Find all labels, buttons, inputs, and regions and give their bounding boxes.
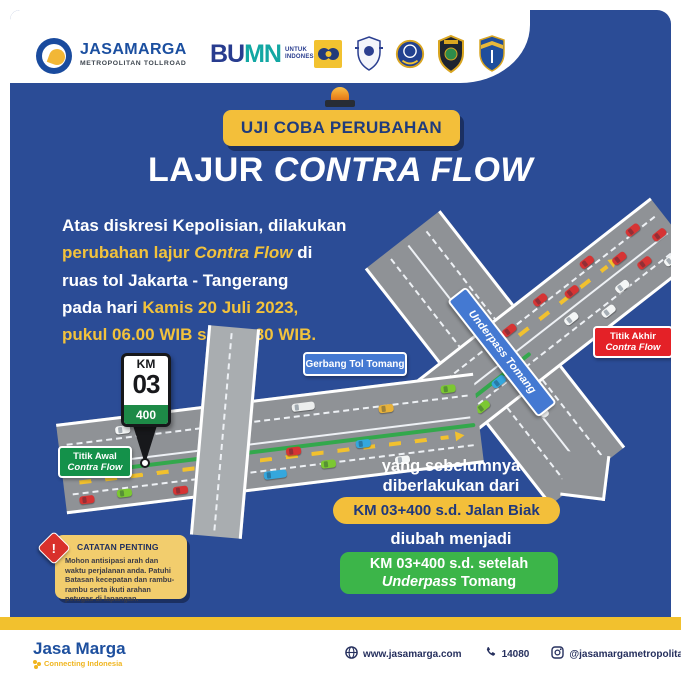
km-sign-anchor-dot	[140, 458, 150, 468]
contraflow-end-line1: Titik Akhir	[610, 331, 656, 342]
car-icon	[117, 488, 133, 498]
warning-exclamation: !	[52, 541, 56, 556]
globe-icon	[345, 646, 358, 662]
dki-jakarta-logo-icon	[476, 34, 508, 74]
jasamarga-logo-subtitle: METROPOLITAN TOLLROAD	[80, 60, 187, 67]
main-panel: JASAMARGA METROPOLITAN TOLLROAD BUMN UNT…	[10, 10, 671, 617]
footer-tagline: Connecting Indonesia	[44, 659, 122, 668]
footer-brand: Jasa Marga	[33, 639, 126, 659]
agency-emblems	[312, 34, 508, 74]
pu-ministry-logo-icon	[312, 34, 344, 74]
siren-icon	[325, 87, 355, 109]
road-crossing-vertical	[190, 325, 260, 539]
yellow-stripe	[0, 617, 681, 630]
truck-icon	[291, 401, 315, 412]
km-marker-sign: KM 03 400	[121, 353, 171, 427]
change-before-line2: diberlakukan dari	[337, 476, 565, 496]
car-icon	[440, 384, 456, 394]
footer-phone[interactable]: 14080	[484, 646, 530, 662]
instagram-icon	[551, 646, 564, 662]
intro-line4-regular: pada hari	[62, 298, 142, 317]
jasamarga-logo-icon	[36, 38, 72, 74]
page-title-regular: LAJUR	[148, 151, 274, 189]
change-transition-text: diubah menjadi	[337, 529, 565, 549]
kemenhub-logo-icon	[394, 34, 426, 74]
footer-phone-label: 14080	[502, 649, 530, 660]
change-after-italic: Underpass	[382, 574, 457, 590]
footer-tagline-icon	[33, 660, 37, 664]
change-before-text: yang sebelumnya diberlakukan dari	[337, 456, 565, 496]
intro-line4-highlight: Kamis 20 Juli 2023,	[142, 298, 298, 317]
phone-icon	[484, 646, 497, 662]
footer-website-label: www.jasamarga.com	[363, 649, 462, 660]
intro-line1: Atas diskresi Kepolisian, dilakukan	[62, 212, 402, 239]
footer-instagram[interactable]: @jasamargametropolitan	[551, 646, 681, 662]
footer: Jasa Marga Connecting Indonesia www.jasa…	[0, 630, 681, 680]
bumn-logo: BUMN UNTUK INDONESIA	[210, 42, 320, 67]
contraflow-end-badge: Titik Akhir Contra Flow	[593, 326, 671, 358]
important-note-title: CATATAN PENTING	[77, 542, 159, 552]
bumn-logo-mn: MN	[244, 40, 281, 68]
km-sign-meters: 400	[124, 405, 168, 424]
road-end-arrow-icon	[560, 451, 610, 501]
jasamarga-logo: JASAMARGA METROPOLITAN TOLLROAD	[80, 41, 187, 67]
change-after-value: KM 03+400 s.d. setelah Underpass Tomang	[340, 552, 558, 594]
intro-line2-tail: di	[292, 243, 312, 262]
intro-line4: pada hari Kamis 20 Juli 2023,	[62, 294, 402, 321]
change-after-line1: KM 03+400 s.d. setelah	[370, 555, 528, 573]
change-before-line1: yang sebelumnya	[337, 456, 565, 476]
korlantas-polri-logo-icon	[353, 34, 385, 74]
important-note-box: CATATAN PENTING Mohon antisipasi arah da…	[55, 535, 187, 599]
footer-instagram-label: @jasamargametropolitan	[569, 649, 681, 660]
trial-banner: UJI COBA PERUBAHAN	[223, 110, 460, 146]
intro-line2-italic: Contra Flow	[194, 243, 292, 262]
car-icon	[624, 222, 641, 238]
intro-line3: ruas tol Jakarta - Tangerang	[62, 267, 402, 294]
page-title-italic: CONTRA FLOW	[274, 151, 533, 189]
intro-line2: perubahan lajur Contra Flow di	[62, 239, 402, 266]
change-transition-label: diubah menjadi	[337, 529, 565, 549]
page-title: LAJUR CONTRA FLOW	[10, 151, 671, 190]
toll-gate-badge: Gerbang Tol Tomang	[303, 352, 407, 376]
bus-icon	[263, 469, 287, 480]
contraflow-end-line2: Contra Flow	[606, 342, 661, 353]
change-after-line2: Underpass Tomang	[382, 573, 516, 591]
contraflow-start-line2: Contra Flow	[68, 462, 123, 473]
car-icon	[378, 404, 394, 414]
important-note-body: Mohon antisipasi arah dan waktu perjalan…	[65, 556, 180, 604]
car-icon	[321, 459, 337, 469]
car-icon	[173, 485, 189, 495]
polda-metro-jaya-logo-icon	[435, 34, 467, 74]
intro-line2-highlight: perubahan lajur	[62, 243, 194, 262]
jasamarga-logo-title: JASAMARGA	[80, 41, 187, 58]
footer-website[interactable]: www.jasamarga.com	[345, 646, 462, 662]
toll-gate-badge-label: Gerbang Tol Tomang	[305, 359, 404, 370]
bumn-logo-bu: BU	[210, 40, 244, 68]
car-icon	[79, 495, 95, 505]
contraflow-start-badge: Titik Awal Contra Flow	[58, 446, 132, 478]
header-band: JASAMARGA METROPOLITAN TOLLROAD BUMN UNT…	[10, 10, 530, 83]
footer-contacts: www.jasamarga.com 14080 @jasamargametrop…	[345, 646, 681, 662]
trial-banner-label: UJI COBA PERUBAHAN	[241, 118, 442, 138]
contraflow-start-line1: Titik Awal	[73, 451, 117, 462]
km-sign-number: 03	[133, 371, 160, 397]
change-after-tail: Tomang	[457, 574, 516, 590]
change-before-value-label: KM 03+400 s.d. Jalan Biak	[353, 502, 539, 519]
change-before-value: KM 03+400 s.d. Jalan Biak	[333, 497, 560, 524]
